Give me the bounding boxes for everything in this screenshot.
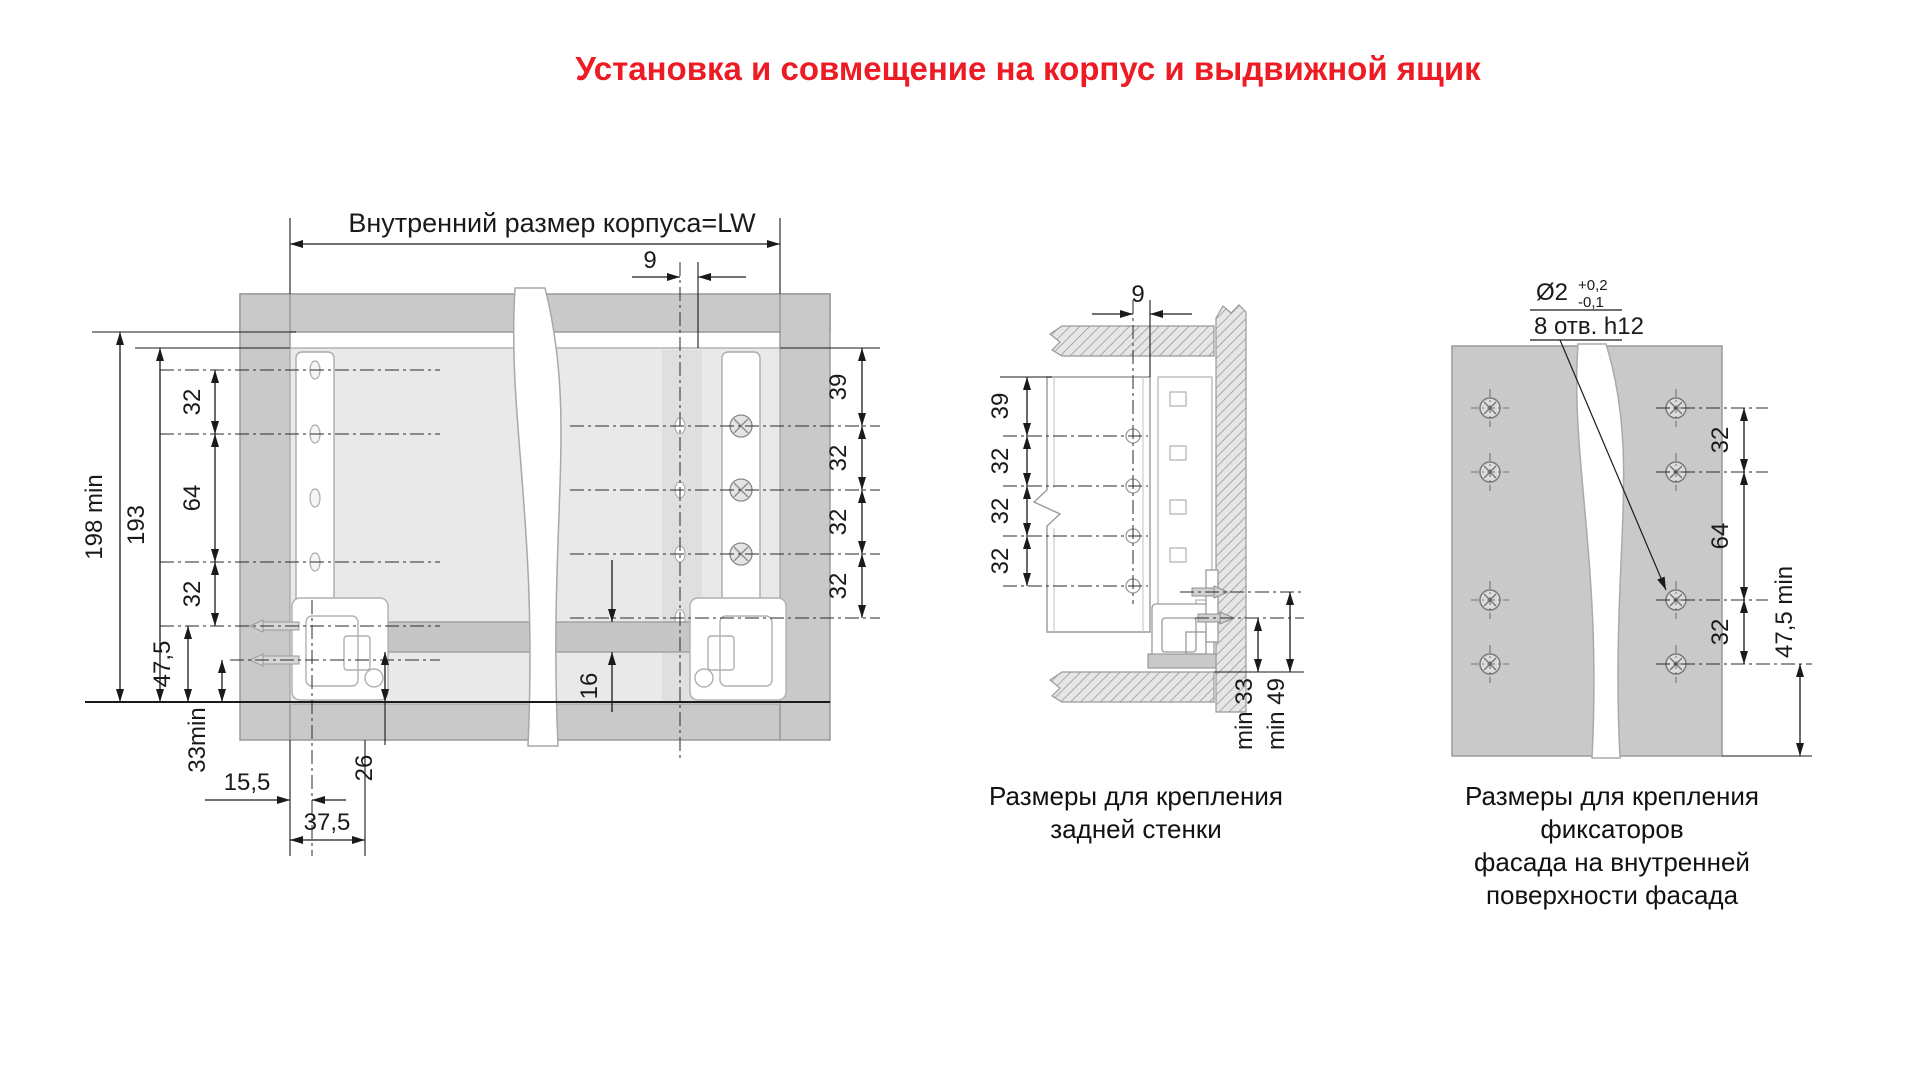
caption-facade-line1: Размеры для крепления фиксаторов [1408,780,1816,846]
dim-rail-height-value: 26 [351,755,378,782]
dim-bottom-min: 33min [184,660,222,773]
hole-note-tolerance-minus: -0,1 [1578,294,1604,311]
dim-chain-value: 32 [1707,427,1734,454]
dim-chain-value: 64 [1707,523,1734,550]
left-corner-bracket [292,598,388,700]
dim-chain-value: 32 [987,448,1014,475]
dim-front-inset: 37,5 [290,809,365,840]
right-corner-bracket [690,598,786,700]
dim-side-inset-value: 15,5 [224,769,271,796]
hole-note-diameter: Ø2 [1536,279,1568,306]
dim-side-inset: 15,5 [205,769,346,800]
cabinet-left-panel [240,294,290,740]
dim-internal-width-label: Внутренний размер корпуса=LW [348,208,756,238]
cabinet-top-view-drawing: Внутренний размер корпуса=LW 9 198 min 1… [81,208,880,856]
dim-front-inset-value: 37,5 [304,809,351,836]
facade-fixator-drawing: Ø2 +0,2 -0,1 8 отв. h12 32 64 32 4 [1452,277,1812,758]
caption-back-wall: Размеры для крепления задней стенки [976,780,1296,846]
rail-hole-icon [310,489,320,507]
dim-chain-value: 32 [1707,619,1734,646]
dim-front-distance: 47,5 [149,626,188,702]
dim-top-offset-value: 9 [643,247,656,274]
dim-bottom-min-value: 33min [184,707,211,772]
dim-bottom-min: 47,5 min [1771,566,1800,756]
bottom-runner [1148,654,1216,668]
dim-top-offset-value: 9 [1131,281,1144,308]
dim-chain-value: 39 [825,374,852,401]
dim-chain-value: 64 [179,485,206,512]
technical-drawing-canvas: Внутренний размер корпуса=LW 9 198 min 1… [0,0,1920,1080]
dim-chain-value: 39 [987,393,1014,420]
back-wall-mounting-drawing: 9 39 32 32 32 min 33 min 49 [987,281,1304,750]
hole-note-tolerance-plus: +0,2 [1578,277,1608,294]
dim-min-49-value: min 49 [1263,678,1290,750]
dim-top-offset: 9 [632,247,746,277]
dim-front-distance-value: 47,5 [149,641,176,688]
dim-chain-value: 32 [825,445,852,472]
cabinet-right-panel [780,294,830,740]
dim-gallery-thickness-value: 16 [576,673,603,700]
dim-chain-value: 32 [179,581,206,608]
dim-min-33-value: min 33 [1231,678,1258,750]
dim-chain-value: 32 [987,548,1014,575]
dim-min-49: min 49 [1263,592,1290,750]
left-rail [296,352,334,618]
dim-chain-value: 32 [179,389,206,416]
dim-chain-value: 32 [987,498,1014,525]
hatched-wall-right [1216,305,1246,712]
dim-bottom-min-value: 47,5 min [1771,566,1798,658]
caption-facade-line3: поверхности фасада [1408,879,1816,912]
caption-back-wall-line1: Размеры для крепления [976,780,1296,813]
caption-back-wall-line2: задней стенки [976,813,1296,846]
caption-facade-line2: фасада на внутренней [1408,846,1816,879]
caption-facade-fixators: Размеры для крепления фиксаторов фасада … [1408,780,1816,912]
dim-height-min: 198 min [81,332,120,702]
hatched-wall-top [1050,326,1214,356]
dim-top-offset: 9 [1092,281,1192,314]
dim-chain-value: 32 [825,509,852,536]
dim-internal-width: Внутренний размер корпуса=LW [290,208,780,244]
hatched-wall-bottom [1050,672,1214,702]
hole-note-count: 8 отв. h12 [1534,313,1644,340]
dim-chain-value: 32 [825,573,852,600]
dim-height-min-value: 198 min [81,474,108,559]
dim-height-value: 193 [123,505,150,545]
